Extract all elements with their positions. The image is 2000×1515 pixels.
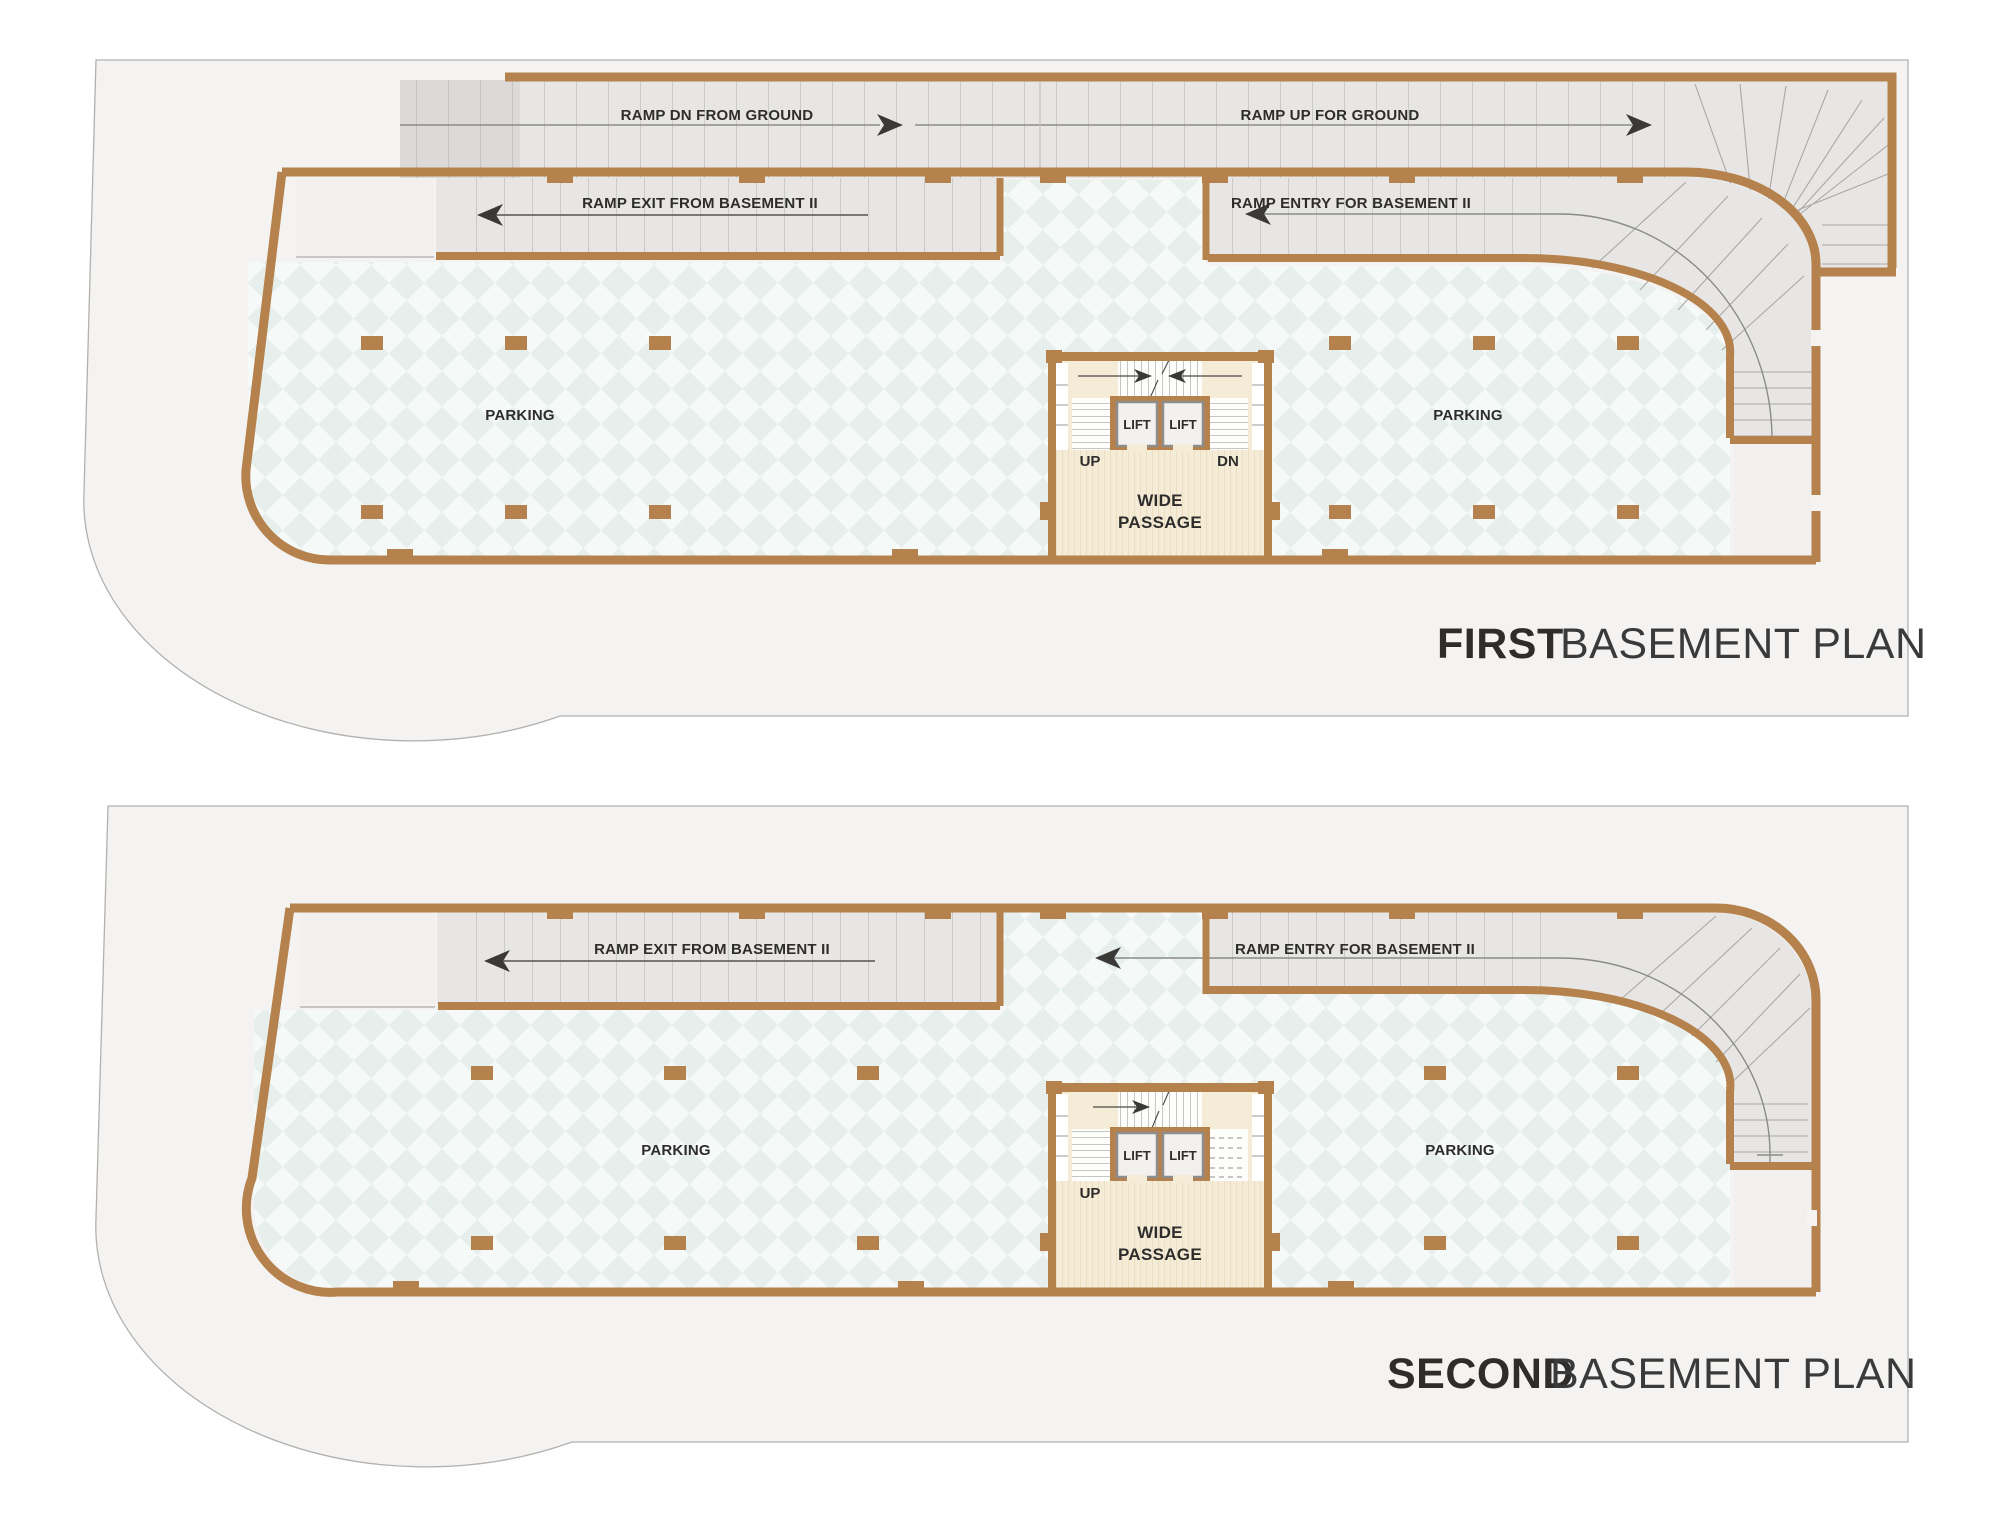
ramp-exit-label-2: RAMP EXIT FROM BASEMENT II (594, 941, 830, 958)
door-gap (1811, 495, 1821, 511)
plan1-title: FIRST BASEMENT PLAN (1437, 620, 1927, 668)
wide-passage-label-2: PASSAGE (1118, 1245, 1202, 1264)
lift-label: LIFT (1123, 1148, 1150, 1163)
wide-passage-label-2: WIDE (1137, 1223, 1183, 1242)
lift-label: LIFT (1169, 1148, 1196, 1163)
ramp-up-label: RAMP UP FOR GROUND (1241, 107, 1420, 124)
up-label-2: UP (1080, 1185, 1101, 1202)
dn-label: DN (1217, 453, 1239, 470)
plan1-title-accent: FIRST (1437, 620, 1564, 668)
door-gap (1811, 330, 1821, 346)
plan2-title-accent: SECOND (1387, 1350, 1574, 1398)
lift-label: LIFT (1169, 417, 1196, 432)
floor-plan-sheet: RAMP DN FROM GROUND RAMP UP FOR GROUND R… (0, 0, 2000, 1515)
lift-stair-core-1: LIFT LIFT UP DN WIDE PASSAGE (1040, 350, 1280, 560)
parking-right-label-2: PARKING (1425, 1142, 1494, 1159)
first-basement-plan: RAMP DN FROM GROUND RAMP UP FOR GROUND R… (84, 60, 1927, 741)
wide-passage-label: PASSAGE (1118, 513, 1202, 532)
ramp-exit-strip-2: RAMP EXIT FROM BASEMENT II (300, 912, 1003, 1007)
plan2-title-rest: BASEMENT PLAN (1550, 1350, 1917, 1398)
plan1-title-rest: BASEMENT PLAN (1560, 620, 1927, 668)
basement-plans-drawing: RAMP DN FROM GROUND RAMP UP FOR GROUND R… (0, 0, 2000, 1515)
ramp-entry-label: RAMP ENTRY FOR BASEMENT II (1231, 195, 1471, 212)
ramp-dn-label: RAMP DN FROM GROUND (621, 107, 814, 124)
parking-right-label-1: PARKING (1433, 407, 1502, 424)
ramp-entry-label-2: RAMP ENTRY FOR BASEMENT II (1235, 941, 1475, 958)
wide-passage-label: WIDE (1137, 491, 1183, 510)
door-gap (1807, 1210, 1817, 1226)
parking-left-label-1: PARKING (485, 407, 554, 424)
lift-label: LIFT (1123, 417, 1150, 432)
ramp-exit-strip-1: RAMP EXIT FROM BASEMENT II (296, 178, 1000, 257)
ramp-exit-label: RAMP EXIT FROM BASEMENT II (582, 195, 818, 212)
lift-stair-core-2: LIFT LIFT UP WIDE PASSAGE (1040, 1081, 1280, 1291)
parking-left-label-2: PARKING (641, 1142, 710, 1159)
plan2-title: SECOND BASEMENT PLAN (1387, 1350, 1917, 1398)
up-label: UP (1080, 453, 1101, 470)
second-basement-plan: RAMP EXIT FROM BASEMENT II RAMP ENTRY FO… (96, 806, 1917, 1467)
